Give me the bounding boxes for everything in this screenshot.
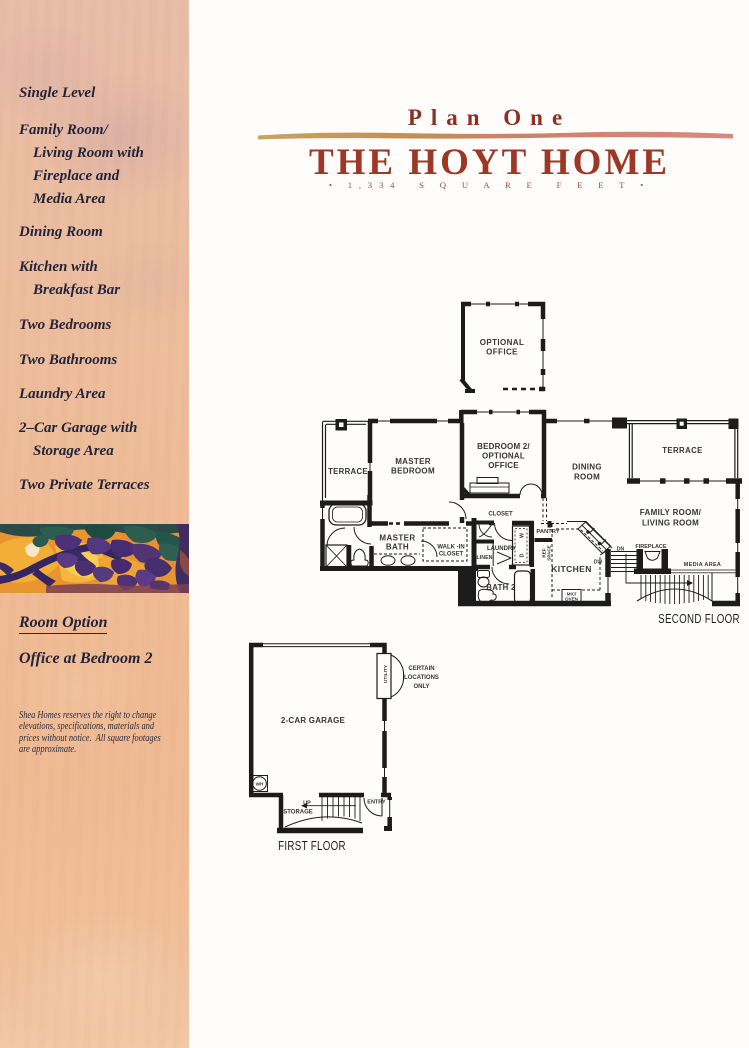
- svg-text:TERRACE: TERRACE: [328, 467, 368, 476]
- svg-text:MASTER: MASTER: [379, 534, 415, 543]
- svg-text:OFFICE: OFFICE: [488, 461, 519, 470]
- svg-text:LIVING ROOM: LIVING ROOM: [642, 519, 699, 528]
- svg-text:PANTRY: PANTRY: [536, 529, 559, 535]
- svg-text:2-CAR GARAGE: 2-CAR GARAGE: [281, 716, 346, 725]
- svg-text:DINING: DINING: [572, 463, 602, 472]
- svg-text:BEDROOM: BEDROOM: [391, 467, 435, 476]
- svg-text:LAUNDRY: LAUNDRY: [487, 546, 516, 552]
- svg-text:SPACE: SPACE: [547, 545, 552, 561]
- svg-text:D: D: [520, 553, 526, 557]
- svg-text:DW: DW: [594, 560, 603, 566]
- svg-text:CERTAIN: CERTAIN: [408, 666, 434, 672]
- svg-text:FAMILY ROOM/: FAMILY ROOM/: [640, 508, 702, 517]
- svg-text:BATH: BATH: [386, 543, 409, 552]
- svg-text:TERRACE: TERRACE: [662, 446, 703, 455]
- svg-text:WALK -IN: WALK -IN: [437, 545, 464, 551]
- svg-text:ROOM: ROOM: [574, 473, 600, 482]
- svg-text:FIREPLACE: FIREPLACE: [635, 544, 667, 550]
- svg-text:CLOSET: CLOSET: [488, 512, 513, 518]
- svg-text:CLOSET: CLOSET: [439, 552, 464, 558]
- svg-text:ONLY: ONLY: [413, 684, 429, 690]
- svg-text:BEDROOM 2/: BEDROOM 2/: [477, 442, 530, 451]
- svg-text:LINEN: LINEN: [477, 555, 493, 561]
- svg-text:KITCHEN: KITCHEN: [551, 564, 592, 574]
- svg-text:OFFICE: OFFICE: [486, 348, 518, 357]
- svg-text:STORAGE: STORAGE: [283, 810, 313, 816]
- svg-text:WH: WH: [256, 782, 264, 787]
- svg-text:LOCATIONS: LOCATIONS: [404, 675, 439, 681]
- svg-text:UTILITY: UTILITY: [383, 664, 389, 683]
- svg-text:MASTER: MASTER: [395, 457, 431, 466]
- svg-text:W: W: [520, 533, 526, 538]
- svg-text:OPTIONAL: OPTIONAL: [482, 452, 525, 461]
- svg-text:ENTRY: ENTRY: [367, 800, 386, 806]
- svg-text:MEDIA AREA: MEDIA AREA: [684, 562, 721, 568]
- svg-text:OPTIONAL: OPTIONAL: [480, 338, 525, 347]
- svg-text:BATH 2: BATH 2: [486, 583, 516, 592]
